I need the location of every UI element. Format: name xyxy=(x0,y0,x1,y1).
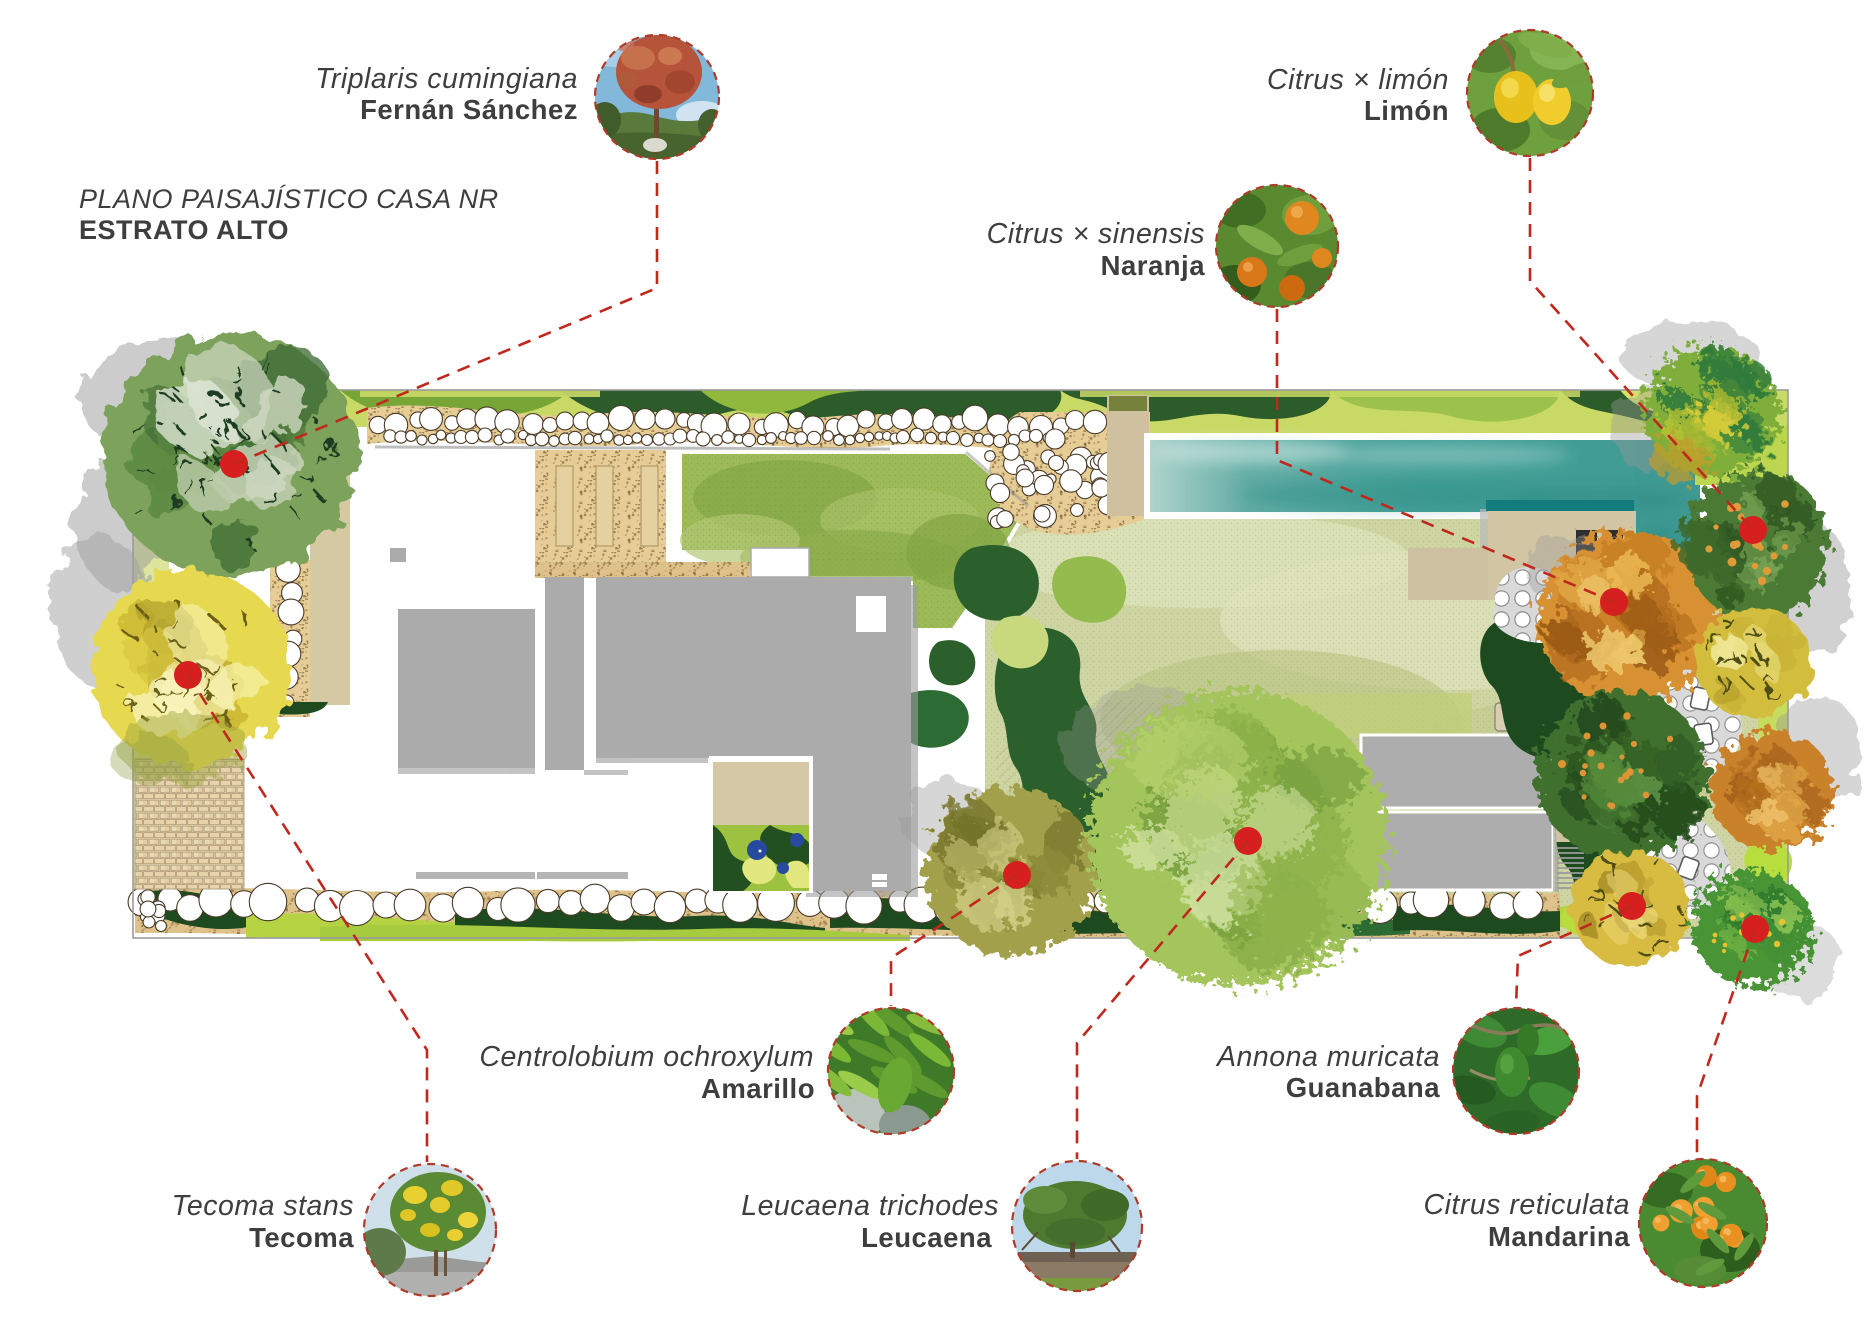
svg-text:Leucaena trichodes: Leucaena trichodes xyxy=(741,1190,999,1222)
svg-text:Triplaris cumingiana: Triplaris cumingiana xyxy=(315,63,578,95)
svg-text:Centrolobium ochroxylum: Centrolobium ochroxylum xyxy=(479,1041,814,1073)
svg-text:Mandarina: Mandarina xyxy=(1488,1221,1630,1252)
svg-text:Citrus × limón: Citrus × limón xyxy=(1267,64,1449,96)
svg-text:Annona muricata: Annona muricata xyxy=(1215,1041,1440,1073)
svg-text:PLANO PAISAJÍSTICO CASA NR: PLANO PAISAJÍSTICO CASA NR xyxy=(79,184,499,214)
svg-text:Tecoma stans: Tecoma stans xyxy=(172,1190,354,1222)
svg-text:Fernán Sánchez: Fernán Sánchez xyxy=(360,94,578,125)
svg-text:Leucaena: Leucaena xyxy=(861,1222,992,1253)
svg-text:Citrus × sinensis: Citrus × sinensis xyxy=(987,218,1205,250)
svg-text:Tecoma: Tecoma xyxy=(249,1222,354,1253)
svg-text:Naranja: Naranja xyxy=(1101,250,1206,281)
svg-text:Citrus reticulata: Citrus reticulata xyxy=(1424,1189,1630,1221)
svg-text:ESTRATO ALTO: ESTRATO ALTO xyxy=(79,215,289,245)
svg-text:Amarillo: Amarillo xyxy=(701,1073,815,1104)
svg-text:Limón: Limón xyxy=(1364,95,1449,126)
svg-text:Guanabana: Guanabana xyxy=(1286,1072,1440,1103)
